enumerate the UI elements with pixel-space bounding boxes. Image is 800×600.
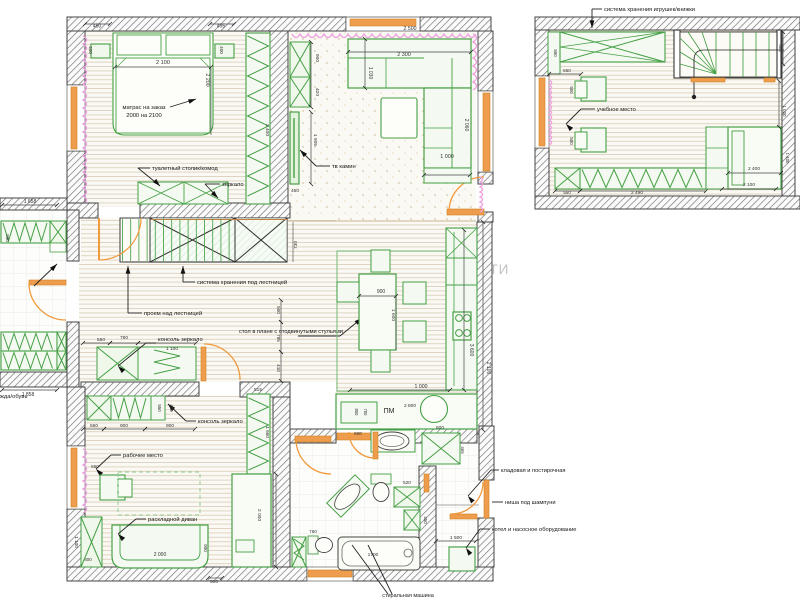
svg-text:500: 500: [569, 86, 574, 94]
svg-text:1 000: 1 000: [415, 384, 428, 390]
svg-text:420: 420: [314, 88, 320, 96]
svg-text:730: 730: [293, 241, 299, 249]
svg-text:зеркало: зеркало: [222, 182, 244, 188]
svg-text:2 060: 2 060: [463, 119, 469, 132]
svg-text:1 660: 1 660: [265, 426, 270, 438]
svg-text:ПМ: ПМ: [384, 408, 395, 415]
svg-text:400: 400: [88, 46, 93, 54]
svg-text:785: 785: [276, 334, 281, 342]
svg-text:2 400: 2 400: [748, 166, 760, 172]
svg-text:жда/обувь: жда/обувь: [0, 394, 28, 400]
svg-text:2 000: 2 000: [154, 552, 167, 558]
svg-text:стиральная машина: стиральная машина: [382, 593, 434, 599]
svg-text:400: 400: [84, 557, 92, 562]
svg-text:900: 900: [203, 544, 208, 552]
svg-text:учебное место: учебное место: [597, 107, 636, 113]
svg-text:1 905: 1 905: [312, 134, 318, 146]
svg-text:1 020: 1 020: [782, 106, 787, 118]
svg-text:2 800: 2 800: [404, 403, 416, 409]
svg-text:2 100: 2 100: [485, 362, 491, 375]
svg-text:600: 600: [436, 425, 444, 431]
svg-text:900: 900: [314, 54, 320, 62]
svg-text:тв камин: тв камин: [332, 164, 356, 170]
svg-text:450: 450: [423, 516, 428, 524]
svg-text:500: 500: [276, 306, 281, 314]
svg-text:700: 700: [363, 409, 368, 417]
svg-text:2000 на 2100: 2000 на 2100: [126, 113, 161, 119]
svg-text:450: 450: [93, 24, 102, 30]
svg-text:760: 760: [309, 529, 317, 534]
svg-text:2 400: 2 400: [264, 124, 270, 136]
svg-text:котел и насосное оборудование: котел и насосное оборудование: [492, 527, 576, 533]
svg-text:900: 900: [5, 234, 10, 242]
svg-text:2 100: 2 100: [743, 182, 755, 188]
svg-text:550: 550: [553, 49, 558, 57]
svg-text:600: 600: [354, 431, 362, 436]
svg-text:консоль зеркало: консоль зеркало: [158, 337, 203, 343]
svg-text:900: 900: [377, 289, 386, 295]
svg-text:500: 500: [210, 579, 218, 585]
svg-text:410: 410: [276, 364, 281, 372]
svg-text:550: 550: [97, 337, 105, 343]
svg-text:система хранения игрушек/книжк: система хранения игрушек/книжки: [604, 7, 695, 13]
svg-text:900: 900: [166, 423, 174, 429]
svg-text:ниша под шампуни: ниша под шампуни: [505, 500, 556, 506]
svg-text:1 600: 1 600: [390, 309, 396, 321]
svg-text:рабочее место: рабочее место: [123, 453, 163, 459]
svg-text:550: 550: [157, 404, 162, 412]
svg-text:проем над лестницей: проем над лестницей: [144, 310, 202, 317]
svg-text:515: 515: [254, 387, 262, 393]
svg-text:стол в плане с отодвинутыми ст: стол в плане с отодвинутыми стульями: [239, 329, 343, 335]
svg-text:550: 550: [563, 68, 571, 73]
svg-text:2 100: 2 100: [156, 60, 170, 66]
svg-text:780: 780: [120, 335, 128, 341]
svg-text:800: 800: [354, 409, 359, 417]
svg-text:раскладной диван: раскладной диван: [148, 516, 197, 523]
svg-text:520: 520: [403, 480, 411, 485]
svg-text:400: 400: [219, 46, 224, 54]
svg-text:1 500: 1 500: [450, 535, 462, 541]
svg-text:2 200: 2 200: [204, 74, 210, 87]
svg-text:500: 500: [569, 137, 574, 145]
svg-text:2 500: 2 500: [404, 26, 417, 32]
svg-text:система хранения под лестницей: система хранения под лестницей: [197, 279, 287, 286]
svg-text:800: 800: [778, 44, 783, 52]
svg-text:465: 465: [460, 446, 465, 454]
svg-text:550: 550: [91, 464, 99, 469]
svg-text:2 300: 2 300: [397, 52, 411, 58]
svg-text:495: 495: [217, 24, 226, 30]
svg-text:400: 400: [169, 404, 174, 412]
svg-text:1 000: 1 000: [440, 154, 454, 160]
svg-text:2 000: 2 000: [256, 509, 262, 521]
svg-text:900: 900: [120, 423, 128, 429]
svg-text:1 030: 1 030: [367, 67, 373, 80]
svg-text:3 600: 3 600: [468, 344, 474, 357]
svg-text:550: 550: [90, 423, 98, 429]
svg-text:кладовая и постирочная: кладовая и постирочная: [501, 468, 565, 474]
svg-text:1 400: 1 400: [785, 153, 790, 165]
svg-text:1 100: 1 100: [74, 536, 79, 548]
svg-text:450: 450: [291, 188, 299, 194]
svg-text:1 100: 1 100: [166, 346, 178, 352]
svg-text:матрас на заказ: матрас на заказ: [122, 105, 165, 111]
svg-text:консоль зеркало: консоль зеркало: [198, 419, 243, 425]
svg-text:туалетный столик/комод: туалетный столик/комод: [152, 165, 218, 172]
svg-text:1 658: 1 658: [24, 199, 37, 205]
